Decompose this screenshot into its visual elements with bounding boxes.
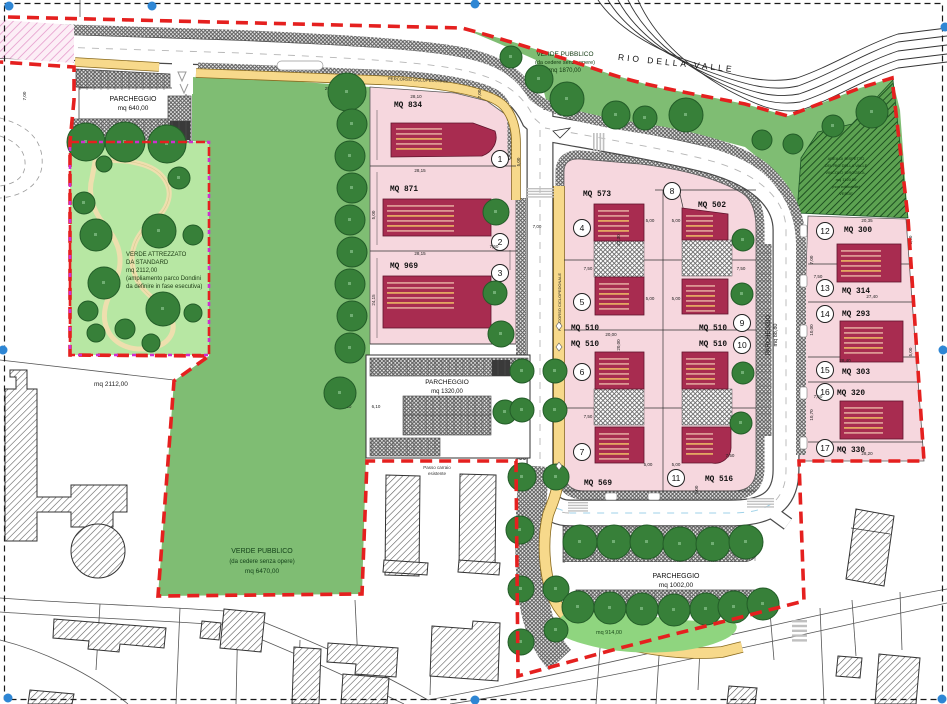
svg-text:VINCOLO IDROGEOL.: VINCOLO IDROGEOL. [825,170,866,175]
svg-text:4: 4 [580,223,585,233]
svg-text:11: 11 [672,473,681,483]
svg-text:mq 2112,00: mq 2112,00 [94,381,128,388]
svg-text:VERDE ATTREZZATO: VERDE ATTREZZATO [126,252,187,258]
svg-text:da definire in fase esecutiva): da definire in fase esecutiva) [126,284,202,290]
svg-text:7,00: 7,00 [809,255,814,264]
svg-text:13: 13 [820,283,830,293]
svg-text:Passo carraio: Passo carraio [423,465,451,470]
svg-text:5,00: 5,00 [908,347,913,356]
svg-text:3: 3 [498,268,503,278]
svg-text:5,00: 5,00 [672,296,681,301]
svg-text:mq 1320,00: mq 1320,00 [431,389,463,395]
svg-text:MQ 320: MQ 320 [837,390,865,398]
svg-text:mq 914,00: mq 914,00 [596,630,622,636]
svg-text:15: 15 [820,365,830,375]
svg-text:6: 6 [580,367,585,377]
svg-text:7,50: 7,50 [814,394,823,399]
svg-text:PARCHEGGIO: PARCHEGGIO [766,315,772,356]
svg-text:27,40: 27,40 [866,294,878,299]
svg-text:7,50: 7,50 [490,244,499,249]
svg-text:MQ 510: MQ 510 [571,341,599,349]
svg-text:(ampliamento parco Dondini: (ampliamento parco Dondini [126,276,201,282]
svg-text:mq 2112,00: mq 2112,00 [126,268,158,274]
svg-text:mq 1002,00: mq 1002,00 [659,582,694,589]
svg-text:MQ 303: MQ 303 [842,369,870,377]
svg-text:22,30: 22,30 [616,234,621,246]
svg-text:DA STANDARD: DA STANDARD [126,260,169,266]
svg-text:mq 1120,00: mq 1120,00 [836,177,858,182]
svg-text:6,10: 6,10 [372,404,381,409]
svg-text:10,00: 10,00 [809,324,814,336]
svg-text:8: 8 [670,186,675,196]
svg-text:mq 1870,00: mq 1870,00 [549,68,581,74]
svg-text:PARCHEGGIO: PARCHEGGIO [653,573,700,580]
svg-text:AREA DI RISPETTO: AREA DI RISPETTO [828,156,865,161]
svg-text:7,00: 7,00 [22,91,27,100]
svg-text:MQ 510: MQ 510 [699,341,727,349]
svg-text:MQ 293: MQ 293 [842,311,870,319]
svg-text:(da cedere senza opere): (da cedere senza opere) [229,559,294,565]
svg-text:VERDE: VERDE [839,191,853,196]
svg-text:MQ 510: MQ 510 [699,325,727,333]
svg-text:20,00: 20,00 [616,339,621,351]
svg-text:14: 14 [820,309,830,319]
svg-text:7,00: 7,00 [533,224,542,229]
svg-text:mq 6470,00: mq 6470,00 [245,568,280,575]
svg-text:10: 10 [737,340,747,350]
svg-text:MQ 569: MQ 569 [584,480,612,488]
svg-text:28,40: 28,40 [839,358,851,363]
svg-text:7,50: 7,50 [814,274,823,279]
svg-text:5,00: 5,00 [672,462,681,467]
svg-text:5,00: 5,00 [644,462,653,467]
svg-text:28,10: 28,10 [410,94,422,99]
svg-text:7,50: 7,50 [584,266,593,271]
svg-text:MQ 871: MQ 871 [390,186,418,194]
svg-text:MQ 969: MQ 969 [390,263,418,271]
svg-text:mq 88,80: mq 88,80 [773,324,779,347]
svg-text:PARCHEGGIO: PARCHEGGIO [110,96,157,103]
svg-text:MQ 573: MQ 573 [583,191,611,199]
svg-text:7: 7 [580,447,585,457]
svg-text:28,15: 28,15 [414,168,426,173]
svg-text:5: 5 [580,297,585,307]
svg-text:9: 9 [740,318,745,328]
svg-text:7,00: 7,00 [694,485,699,494]
svg-text:7,50: 7,50 [737,266,746,271]
svg-text:28,15: 28,15 [414,251,426,256]
svg-text:5,00: 5,00 [516,157,521,166]
svg-text:17: 17 [820,443,830,453]
svg-text:12: 12 [820,226,830,236]
svg-text:5,00: 5,00 [646,296,655,301]
svg-text:mq 640,00: mq 640,00 [118,105,149,112]
svg-text:MQ 834: MQ 834 [394,102,422,110]
svg-text:20,35: 20,35 [861,218,873,223]
svg-text:7,50: 7,50 [726,453,735,458]
svg-text:MQ 300: MQ 300 [844,227,872,235]
svg-text:DEL RIO DELLA VALLE: DEL RIO DELLA VALLE [825,163,868,168]
svg-text:28,20: 28,20 [861,451,873,456]
svg-text:MQ 510: MQ 510 [571,325,599,333]
svg-text:20,00: 20,00 [605,332,617,337]
svg-text:10,70: 10,70 [809,409,814,421]
svg-text:24,15: 24,15 [371,294,376,306]
svg-text:esistente: esistente [428,471,447,476]
svg-text:7,50: 7,50 [584,414,593,419]
svg-text:7,00: 7,00 [477,89,482,98]
svg-text:5,00: 5,00 [371,210,376,219]
svg-text:1: 1 [498,154,503,164]
svg-text:MQ 516: MQ 516 [705,476,733,484]
svg-text:(non edificabile): (non edificabile) [832,184,861,189]
svg-text:5,00: 5,00 [672,218,681,223]
svg-text:5,00: 5,00 [646,218,655,223]
svg-text:PARCHEGGIO: PARCHEGGIO [425,379,469,386]
svg-text:VERDE PUBBLICO: VERDE PUBBLICO [231,548,293,555]
svg-text:MQ 502: MQ 502 [698,202,726,210]
